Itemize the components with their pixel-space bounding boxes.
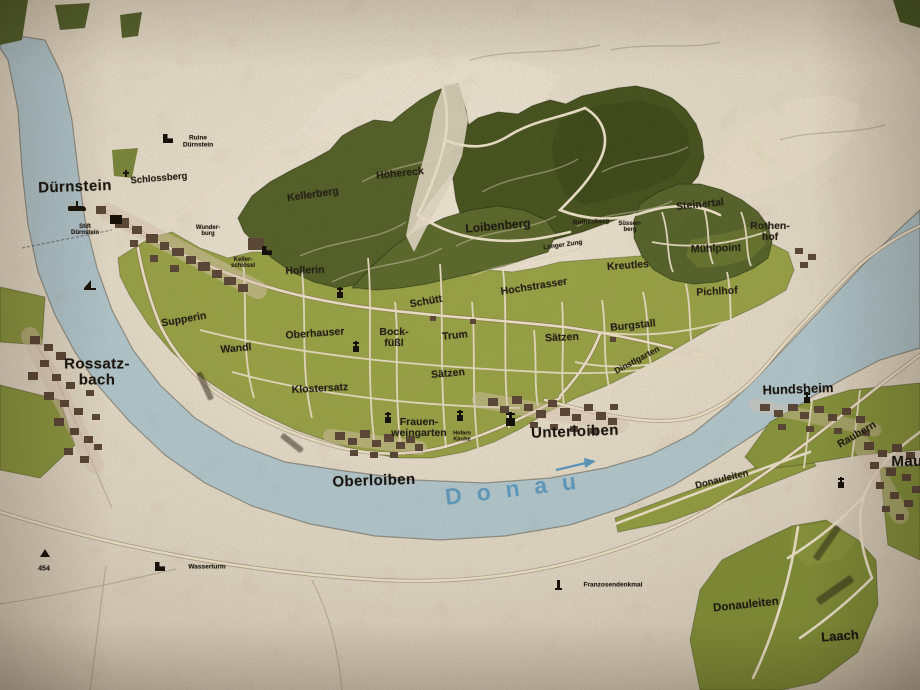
label-saetzen-west: Sätzen bbox=[431, 367, 466, 381]
label-frauenweingarten: Frauen- weingarten bbox=[391, 417, 446, 439]
label-schlossberg: Schlossberg bbox=[130, 172, 188, 187]
label-wandl: Wandl bbox=[220, 342, 252, 356]
label-hollerin: Hollerin bbox=[285, 265, 324, 277]
label-unterloiben: Unterloiben bbox=[531, 423, 619, 442]
label-langer-zung: Langer Zung bbox=[543, 240, 583, 252]
label-stift-duernstein: Stift Dürnstein bbox=[71, 224, 99, 236]
label-raubern: Raubern bbox=[836, 420, 878, 451]
wachau-vineyard-map-photo: DürnsteinRossatz- bachOberloibenUnterloi… bbox=[0, 0, 920, 690]
label-burgstall: Burgstall bbox=[610, 318, 656, 334]
label-donau: Donau bbox=[444, 468, 592, 510]
label-mautern: Mautern bbox=[891, 454, 920, 470]
label-supperin: Supperin bbox=[161, 311, 208, 330]
label-saetzen-ost: Sätzen bbox=[545, 332, 579, 345]
label-ruine-duernstein: Ruine Dürnstein bbox=[183, 135, 213, 149]
label-oberloiben: Oberloiben bbox=[332, 472, 416, 490]
label-franzosendenkmal: Franzosendenkmal bbox=[584, 583, 643, 590]
label-hoehereck: Höhereck bbox=[376, 166, 425, 182]
label-oberhauser: Oberhauser bbox=[285, 327, 345, 342]
label-loibenberg: Loibenberg bbox=[465, 217, 531, 235]
label-schuett: Schütt bbox=[409, 294, 443, 310]
label-kellerberg: Kellerberg bbox=[287, 186, 340, 204]
label-kellerschloessl: Keller- schlössl bbox=[231, 257, 255, 269]
label-spot-454: 454 bbox=[38, 565, 50, 572]
label-laach: Laach bbox=[821, 628, 859, 644]
label-rossatzbach: Rossatz- bach bbox=[64, 356, 130, 387]
label-donauleiten-2: Donauleiten bbox=[713, 597, 780, 616]
labels-layer: DürnsteinRossatz- bachOberloibenUnterloi… bbox=[0, 0, 920, 690]
label-hofarn-kirche: Hofarn Kirche bbox=[453, 431, 471, 442]
label-kreutles: Kreutles bbox=[607, 259, 650, 273]
label-dinstlgarten: Dinstlgarten bbox=[613, 344, 661, 375]
label-wasserturm: Wasserturm bbox=[188, 565, 225, 572]
label-hundsheim: Hundsheim bbox=[762, 381, 833, 397]
label-rothenberg: Rothenberg bbox=[573, 219, 610, 228]
label-wunderburg: Wunder- burg bbox=[196, 225, 220, 237]
label-donauleiten-1: Donauleiten bbox=[694, 469, 749, 492]
label-rothenhof: Rothen- hof bbox=[750, 221, 790, 243]
label-trum: Trum bbox=[442, 329, 469, 343]
label-suessenberg: Süssen- berg bbox=[618, 221, 641, 233]
label-steinertal: Steinertal bbox=[676, 197, 725, 213]
label-hochstrasser: Hochstrasser bbox=[500, 276, 568, 297]
label-pichlhof: Pichlhof bbox=[696, 285, 738, 298]
label-muehlpoint: Mühlpoint bbox=[691, 243, 742, 256]
label-duernstein: Dürnstein bbox=[38, 178, 112, 196]
label-klostersatz: Klostersatz bbox=[291, 382, 348, 396]
label-bockfuessl: Bock- füßl bbox=[379, 327, 408, 349]
